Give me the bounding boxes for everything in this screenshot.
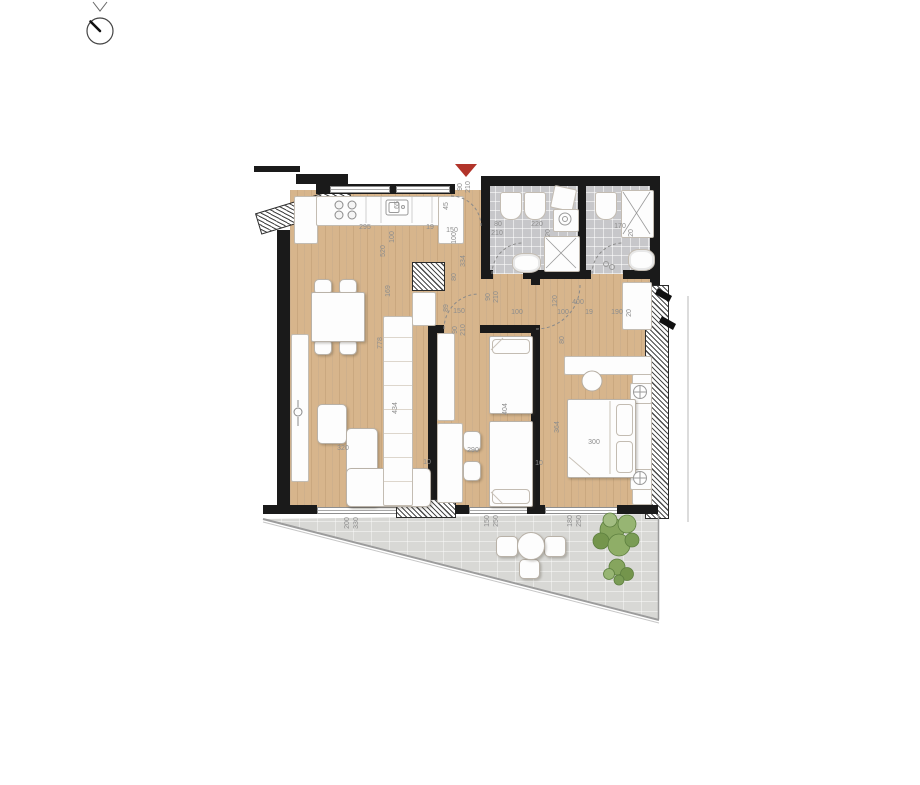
dimension-label: 400 [572,299,584,307]
dimension-label: 80 [494,221,502,229]
dimension-label: 364 [554,421,562,433]
dimension-label: 20 [626,309,634,317]
dimension-label: 10 [423,459,431,467]
dimension-label: 404 [502,403,510,415]
dimension-label: 80 [559,336,567,344]
dimension-label: 10 [535,460,543,468]
dimension-label: 45 [443,202,451,210]
dimension-label: 520 [380,245,388,257]
dimension-label: 330 [353,517,361,529]
dimension-label: 100 [557,309,569,317]
dimension-label: 180 [567,515,575,527]
dimension-label: 20 [545,229,553,237]
dimension-label: 320 [337,445,349,453]
dimension-label: 250 [576,515,584,527]
dimension-label: 778 [377,337,385,349]
dimension-label: 150 [484,515,492,527]
dimension-label: 290 [467,447,479,455]
dimension-labels: 2956510052019150459021010033480802102202… [0,0,920,785]
dimension-label: 170 [614,223,626,231]
dimension-label: 90 [452,326,460,334]
dimension-label: 250 [493,515,501,527]
dimension-label: 190 [611,309,623,317]
dimension-label: 169 [385,285,393,297]
dimension-label: 210 [465,181,473,193]
dimension-label: 90 [485,293,493,301]
dimension-label: 120 [552,295,560,307]
dimension-label: 89 [443,304,451,312]
dimension-label: 434 [392,402,400,414]
dimension-label: 300 [588,439,600,447]
dimension-label: 210 [460,324,468,336]
dimension-label: 334 [460,255,468,267]
dimension-label: 220 [531,221,543,229]
dimension-label: 65 [394,201,402,209]
dimension-label: 100 [389,231,397,243]
dimension-label: 210 [493,291,501,303]
dimension-label: 20 [628,229,636,237]
dimension-label: 90 [457,183,465,191]
dimension-label: 19 [585,309,593,317]
dimension-label: 80 [451,273,459,281]
dimension-label: 200 [344,517,352,529]
dimension-label: 19 [426,224,434,232]
dimension-label: 150 [453,308,465,316]
dimension-label: 210 [491,230,503,238]
dimension-label: 100 [451,232,459,244]
floor-plan: 2956510052019150459021010033480802102202… [0,0,920,785]
dimension-label: 295 [359,224,371,232]
dimension-label: 100 [511,309,523,317]
